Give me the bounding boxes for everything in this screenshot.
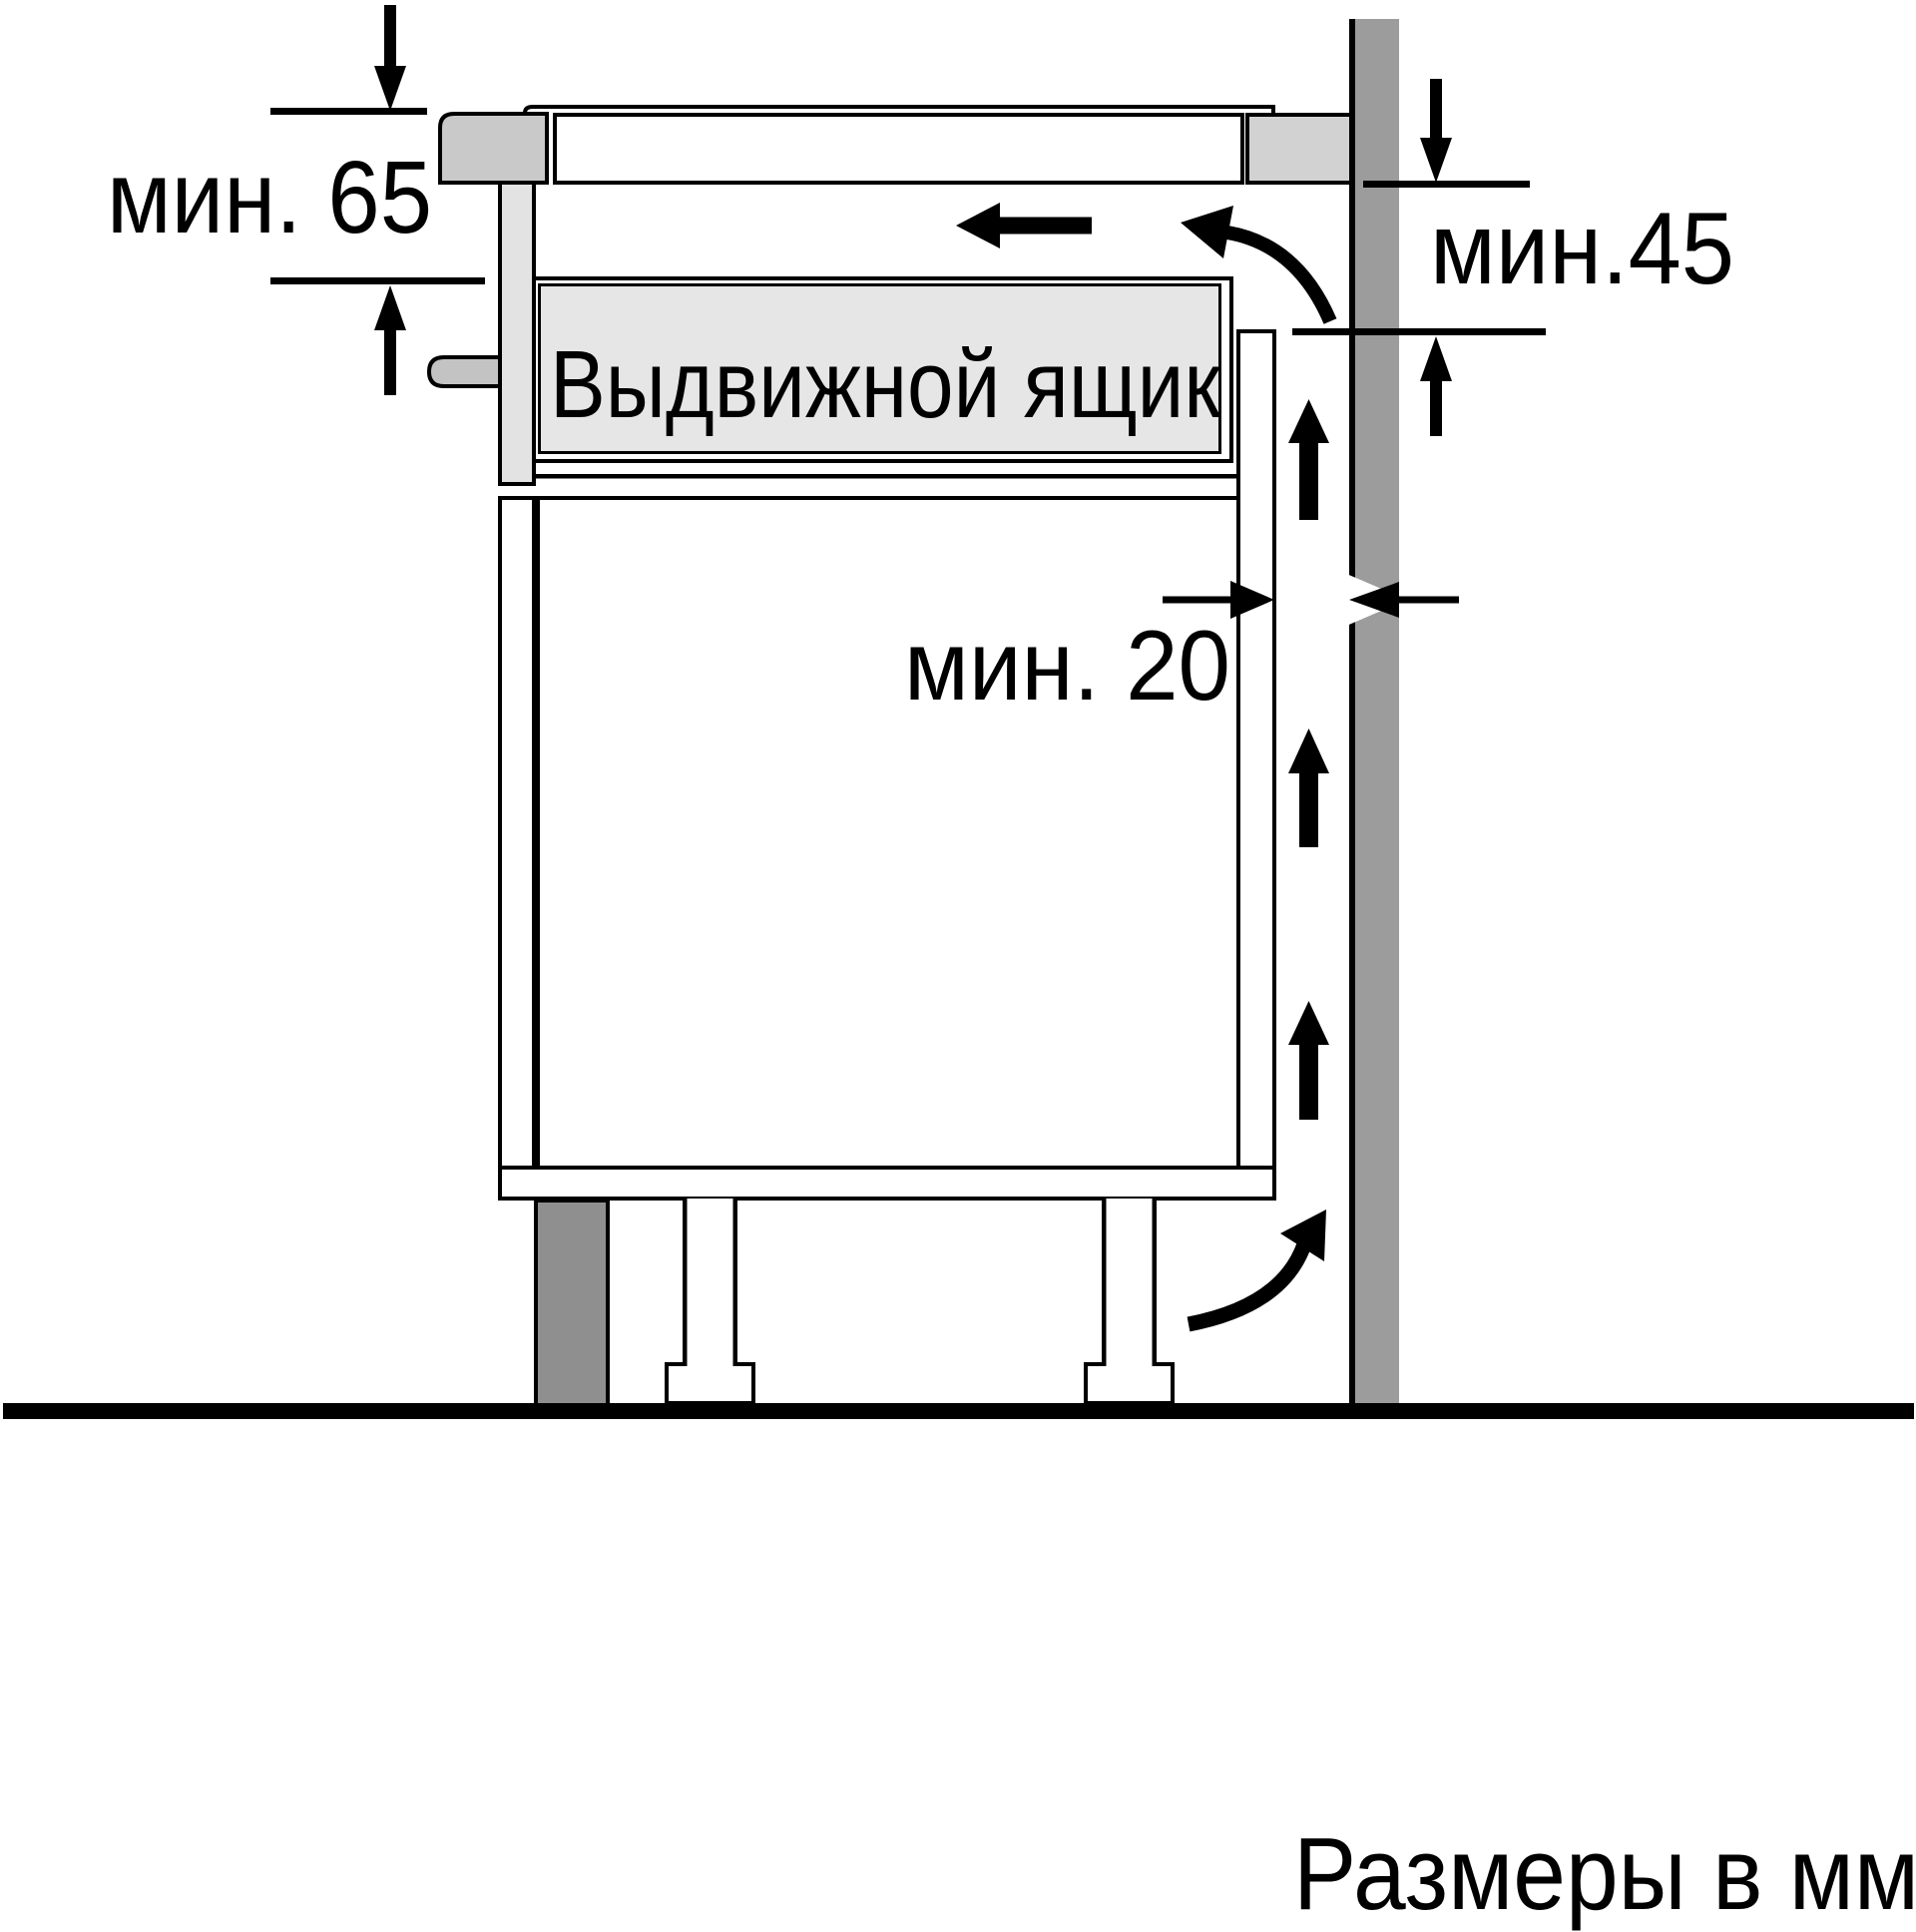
svg-text:Размеры в мм: Размеры в мм — [1293, 1816, 1916, 1931]
svg-text:мин. 20: мин. 20 — [904, 610, 1230, 721]
svg-text:мин.45: мин.45 — [1430, 192, 1734, 305]
svg-text:мин. 65: мин. 65 — [107, 140, 432, 254]
svg-text:Выдвижной ящик: Выдвижной ящик — [550, 331, 1221, 438]
